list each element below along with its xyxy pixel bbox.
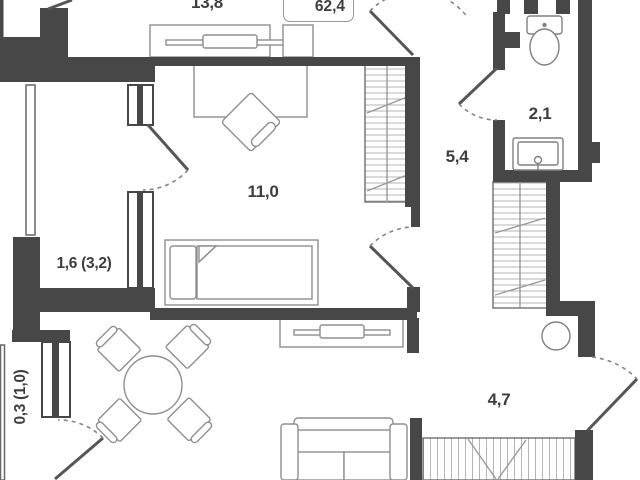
door-leaf-loggia-upper xyxy=(148,125,188,170)
window-loggia-left xyxy=(26,85,35,235)
sink xyxy=(513,138,563,170)
door-arc-loggia-lower xyxy=(58,420,103,438)
wardrobe-hallway xyxy=(493,182,548,308)
floor-plan: 13,8 62,4 11,0 1,6 (3,2) 0,3 (1,0) 5,4 2… xyxy=(0,0,640,480)
dining-table xyxy=(124,356,182,414)
room-area-hallway: 5,4 xyxy=(446,147,469,167)
total-area-value: 62,4 xyxy=(315,0,345,16)
room-area-kitchen-living: 13,8 xyxy=(191,0,223,13)
wardrobe-entry xyxy=(423,438,575,480)
tv-console-top xyxy=(150,25,293,57)
bed xyxy=(165,240,318,305)
door-leaf-top-left xyxy=(48,0,72,9)
door-leaf-bathroom xyxy=(459,68,497,104)
room-area-bedroom: 11,0 xyxy=(248,182,279,202)
room-area-loggia-upper: 1,6 (3,2) xyxy=(56,255,111,273)
door-arc-entry xyxy=(592,357,637,379)
wardrobe-bedroom xyxy=(365,65,409,202)
door-arc-bedroom xyxy=(370,227,413,246)
door-leaf-living-hall xyxy=(370,11,413,55)
door-leaf-bedroom xyxy=(370,246,413,288)
door-leaf-loggia-lower xyxy=(55,438,103,479)
window-partition-upper xyxy=(128,85,153,125)
sofa xyxy=(281,418,407,480)
washing-machine xyxy=(542,322,570,350)
door-arc-bathroom xyxy=(459,104,497,120)
window-partition-lower xyxy=(128,192,153,288)
floor-plan-drawing xyxy=(0,0,640,480)
door-leaf-entry xyxy=(587,379,637,431)
window-loggia-lower xyxy=(42,342,70,417)
total-area-badge: 62,4 xyxy=(283,0,354,22)
room-area-bathroom: 2,1 xyxy=(529,104,552,124)
tv-console-bedroom xyxy=(280,318,403,347)
room-area-loggia-lower: 0,3 (1,0) xyxy=(12,369,30,424)
door-arc-loggia-upper xyxy=(143,170,188,190)
window-loggia-bottom-left xyxy=(1,345,5,480)
toilet xyxy=(527,16,562,65)
room-area-corridor: 4,7 xyxy=(488,390,511,410)
door-arc-living-hall xyxy=(370,0,468,18)
cabinet xyxy=(283,25,313,57)
